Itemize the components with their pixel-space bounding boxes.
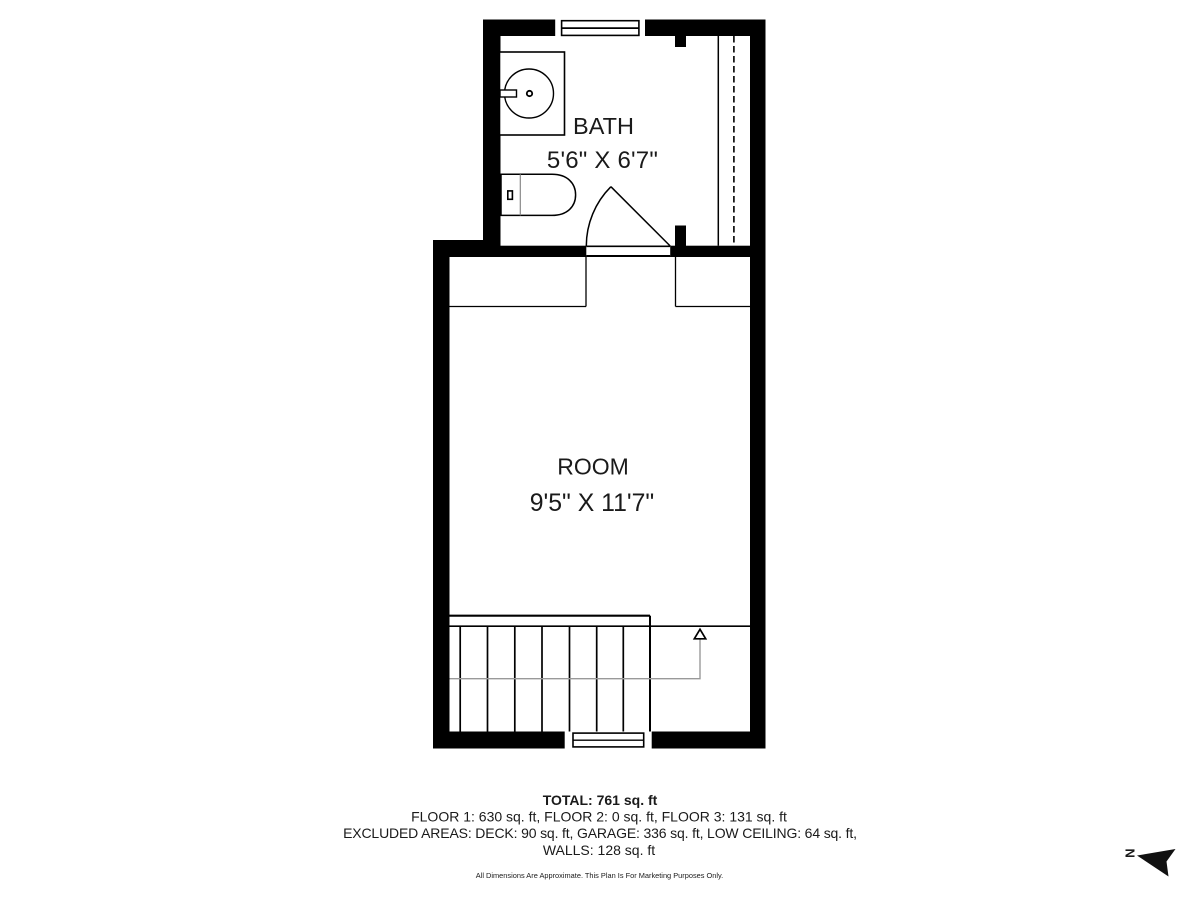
svg-text:5'6" X 6'7": 5'6" X 6'7" xyxy=(547,147,658,174)
svg-text:N: N xyxy=(1123,849,1138,858)
svg-text:9'5" X 11'7": 9'5" X 11'7" xyxy=(530,490,655,517)
svg-text:FLOOR 1: 630 sq. ft, FLOOR 2:: FLOOR 1: 630 sq. ft, FLOOR 2: 0 sq. ft, … xyxy=(411,808,787,824)
svg-text:BATH: BATH xyxy=(573,113,634,139)
svg-text:ROOM: ROOM xyxy=(557,454,629,480)
svg-text:WALLS: 128 sq. ft: WALLS: 128 sq. ft xyxy=(543,842,655,858)
svg-text:EXCLUDED AREAS: DECK: 90 sq. f: EXCLUDED AREAS: DECK: 90 sq. ft, GARAGE:… xyxy=(343,825,857,841)
svg-text:TOTAL: 761 sq. ft: TOTAL: 761 sq. ft xyxy=(543,792,658,808)
svg-text:All Dimensions Are Approximate: All Dimensions Are Approximate. This Pla… xyxy=(476,871,723,880)
